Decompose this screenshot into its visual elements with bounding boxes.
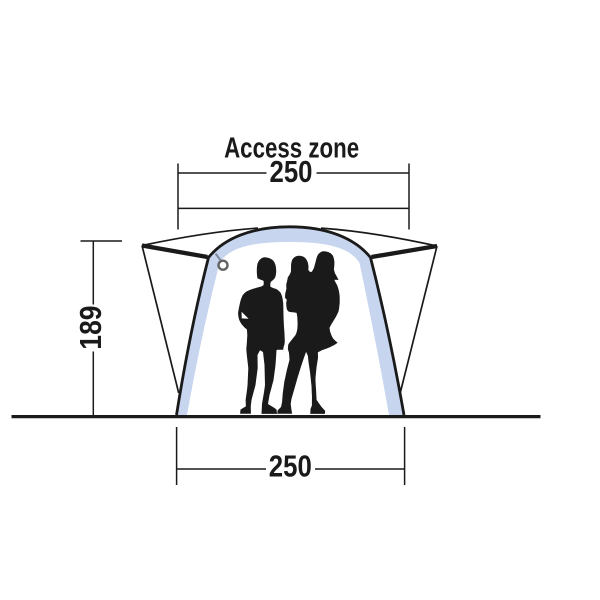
svg-text:250: 250 bbox=[270, 154, 313, 189]
svg-text:189: 189 bbox=[73, 306, 108, 350]
svg-text:250: 250 bbox=[269, 449, 312, 484]
